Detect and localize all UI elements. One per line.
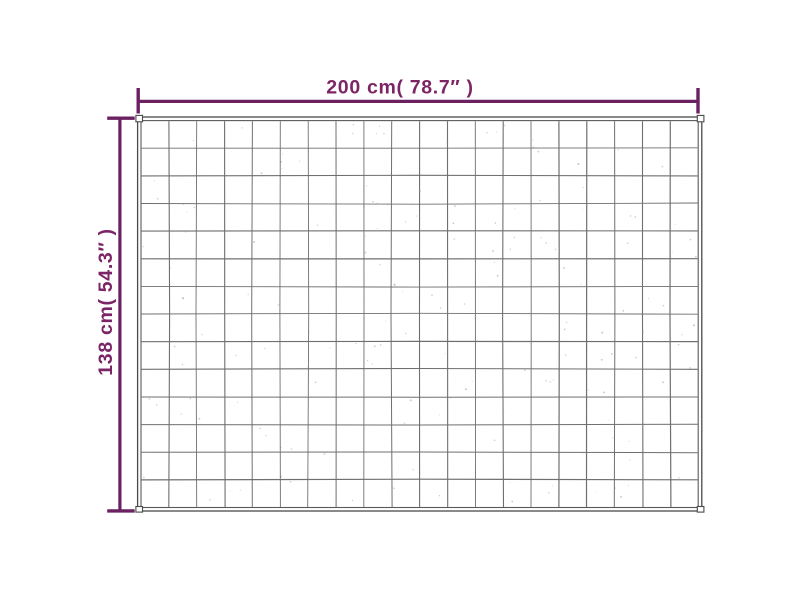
svg-text:200 cm( 78.7″ ): 200 cm( 78.7″ ) <box>326 77 473 99</box>
svg-text:138 cm( 54.3″ ): 138 cm( 54.3″ ) <box>95 228 117 375</box>
